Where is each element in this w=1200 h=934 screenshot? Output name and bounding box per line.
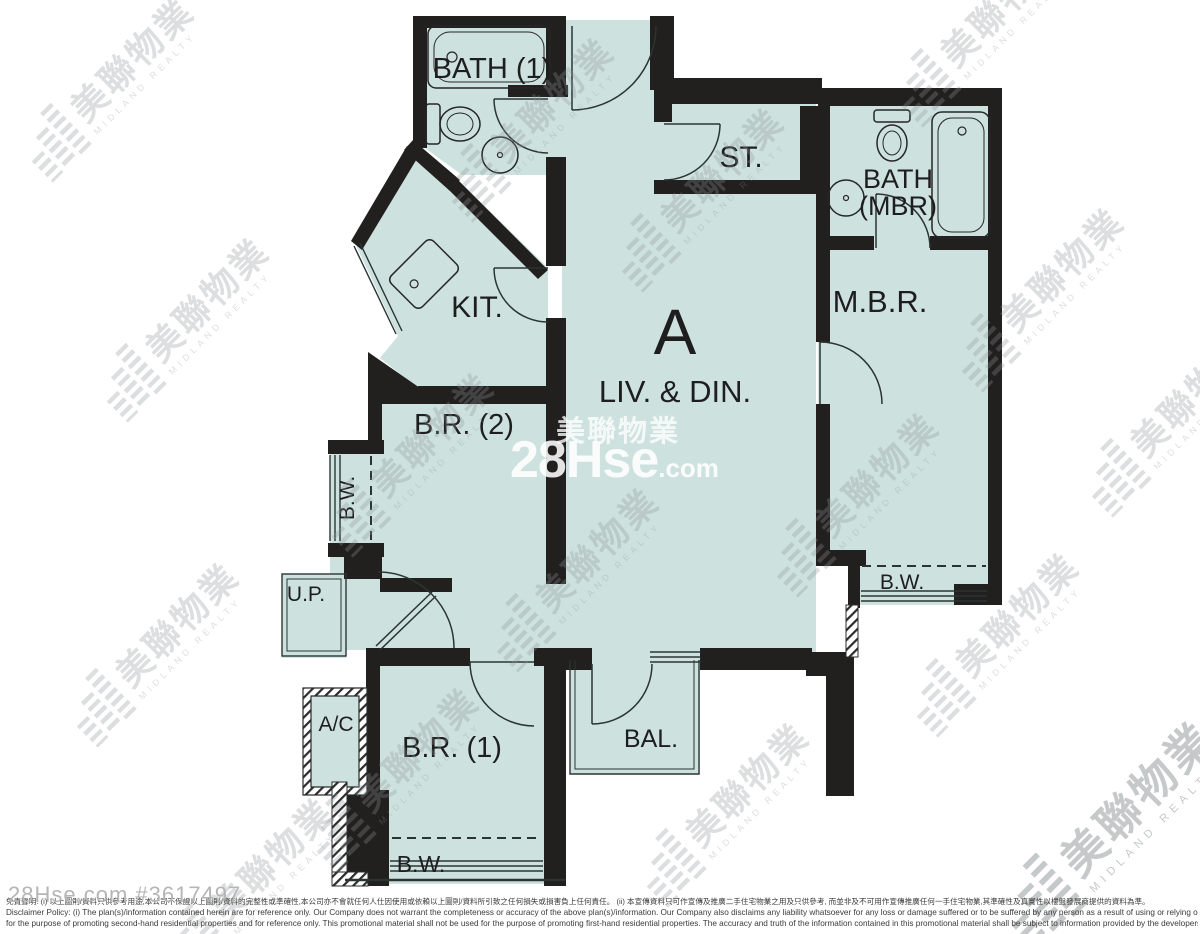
label-br2: B.R. (2)	[414, 409, 514, 441]
floor-areas	[282, 20, 1000, 884]
label-mbr: M.B.R.	[833, 284, 928, 319]
label-kitchen: KIT.	[451, 291, 503, 324]
label-bal: BAL.	[624, 725, 678, 753]
label-storage: ST.	[719, 141, 762, 174]
label-br1: B.R. (1)	[402, 732, 502, 764]
label-up: U.P.	[287, 583, 325, 606]
floor-plan-page: BATH (1) ST. BATH (MBR) M.B.R. KIT. A LI…	[0, 0, 1200, 934]
label-unit: A	[654, 296, 697, 368]
disclaimer-line-en1: Disclaimer Policy: (i) The plan(s)/infor…	[6, 907, 1198, 918]
listing-id: 28Hse.com #3617497	[8, 882, 241, 908]
floor-plan: BATH (1) ST. BATH (MBR) M.B.R. KIT. A LI…	[0, 0, 1200, 934]
label-ac: A/C	[318, 713, 353, 736]
disclaimer-line-en2: for the purpose of promoting second-hand…	[6, 918, 1198, 929]
label-bathmbr-1: BATH	[863, 164, 933, 194]
label-bw-left: B.W.	[336, 476, 359, 520]
label-bw-right: B.W.	[880, 571, 924, 594]
label-bathmbr-2: (MBR)	[859, 191, 937, 221]
label-bath1: BATH (1)	[433, 53, 552, 85]
label-living: LIV. & DIN.	[599, 374, 751, 409]
label-bw-bottom: B.W.	[397, 851, 446, 877]
